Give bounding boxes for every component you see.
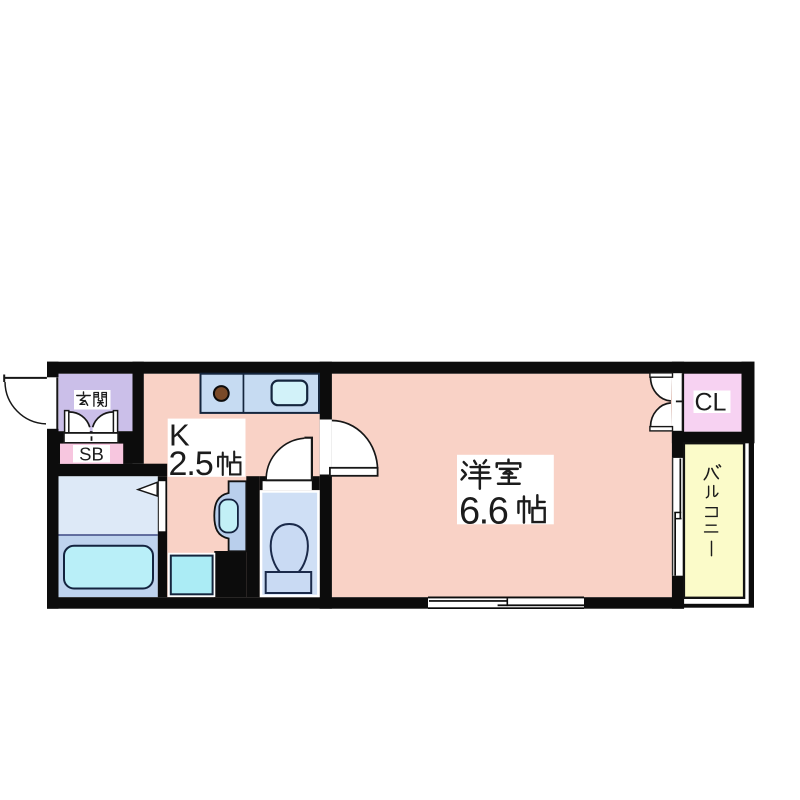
svg-text:6.6: 6.6 xyxy=(459,491,508,533)
svg-text:SB: SB xyxy=(79,443,104,464)
svg-text:2.5: 2.5 xyxy=(169,445,213,483)
svg-text:CL: CL xyxy=(695,389,727,417)
